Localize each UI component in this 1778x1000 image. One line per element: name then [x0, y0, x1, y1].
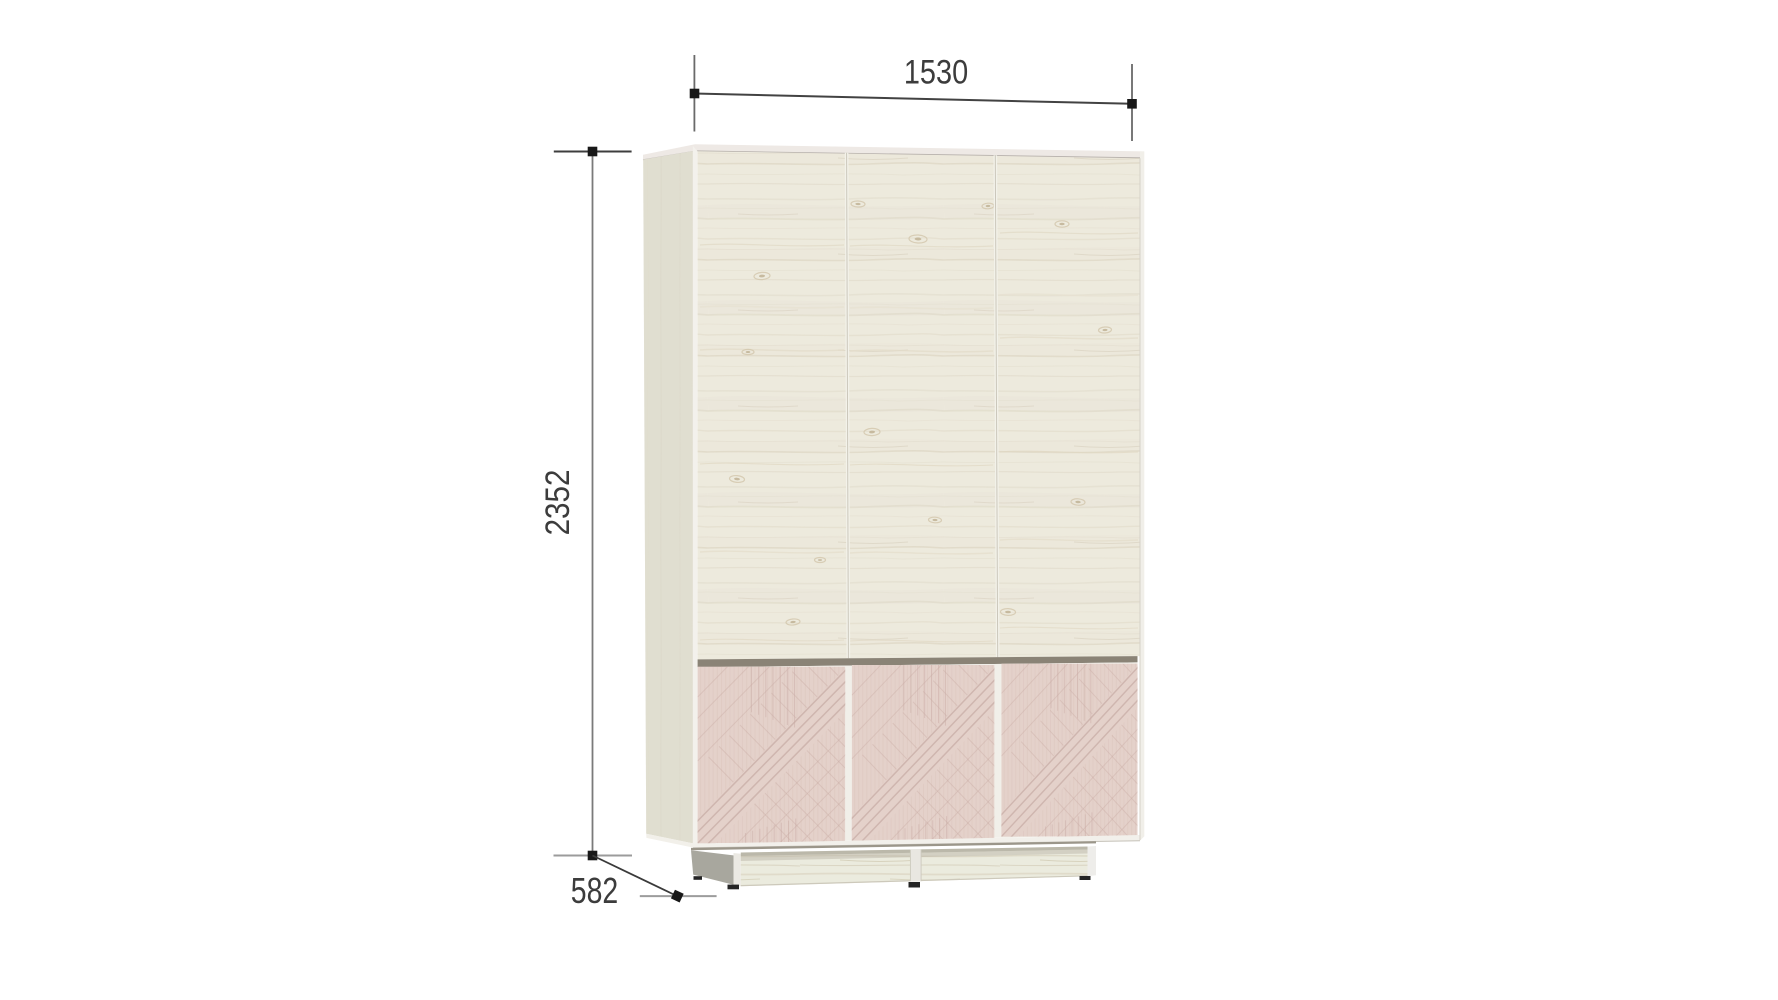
- svg-text:582: 582: [571, 871, 618, 911]
- svg-text:2352: 2352: [538, 470, 576, 536]
- svg-text:1530: 1530: [904, 52, 968, 91]
